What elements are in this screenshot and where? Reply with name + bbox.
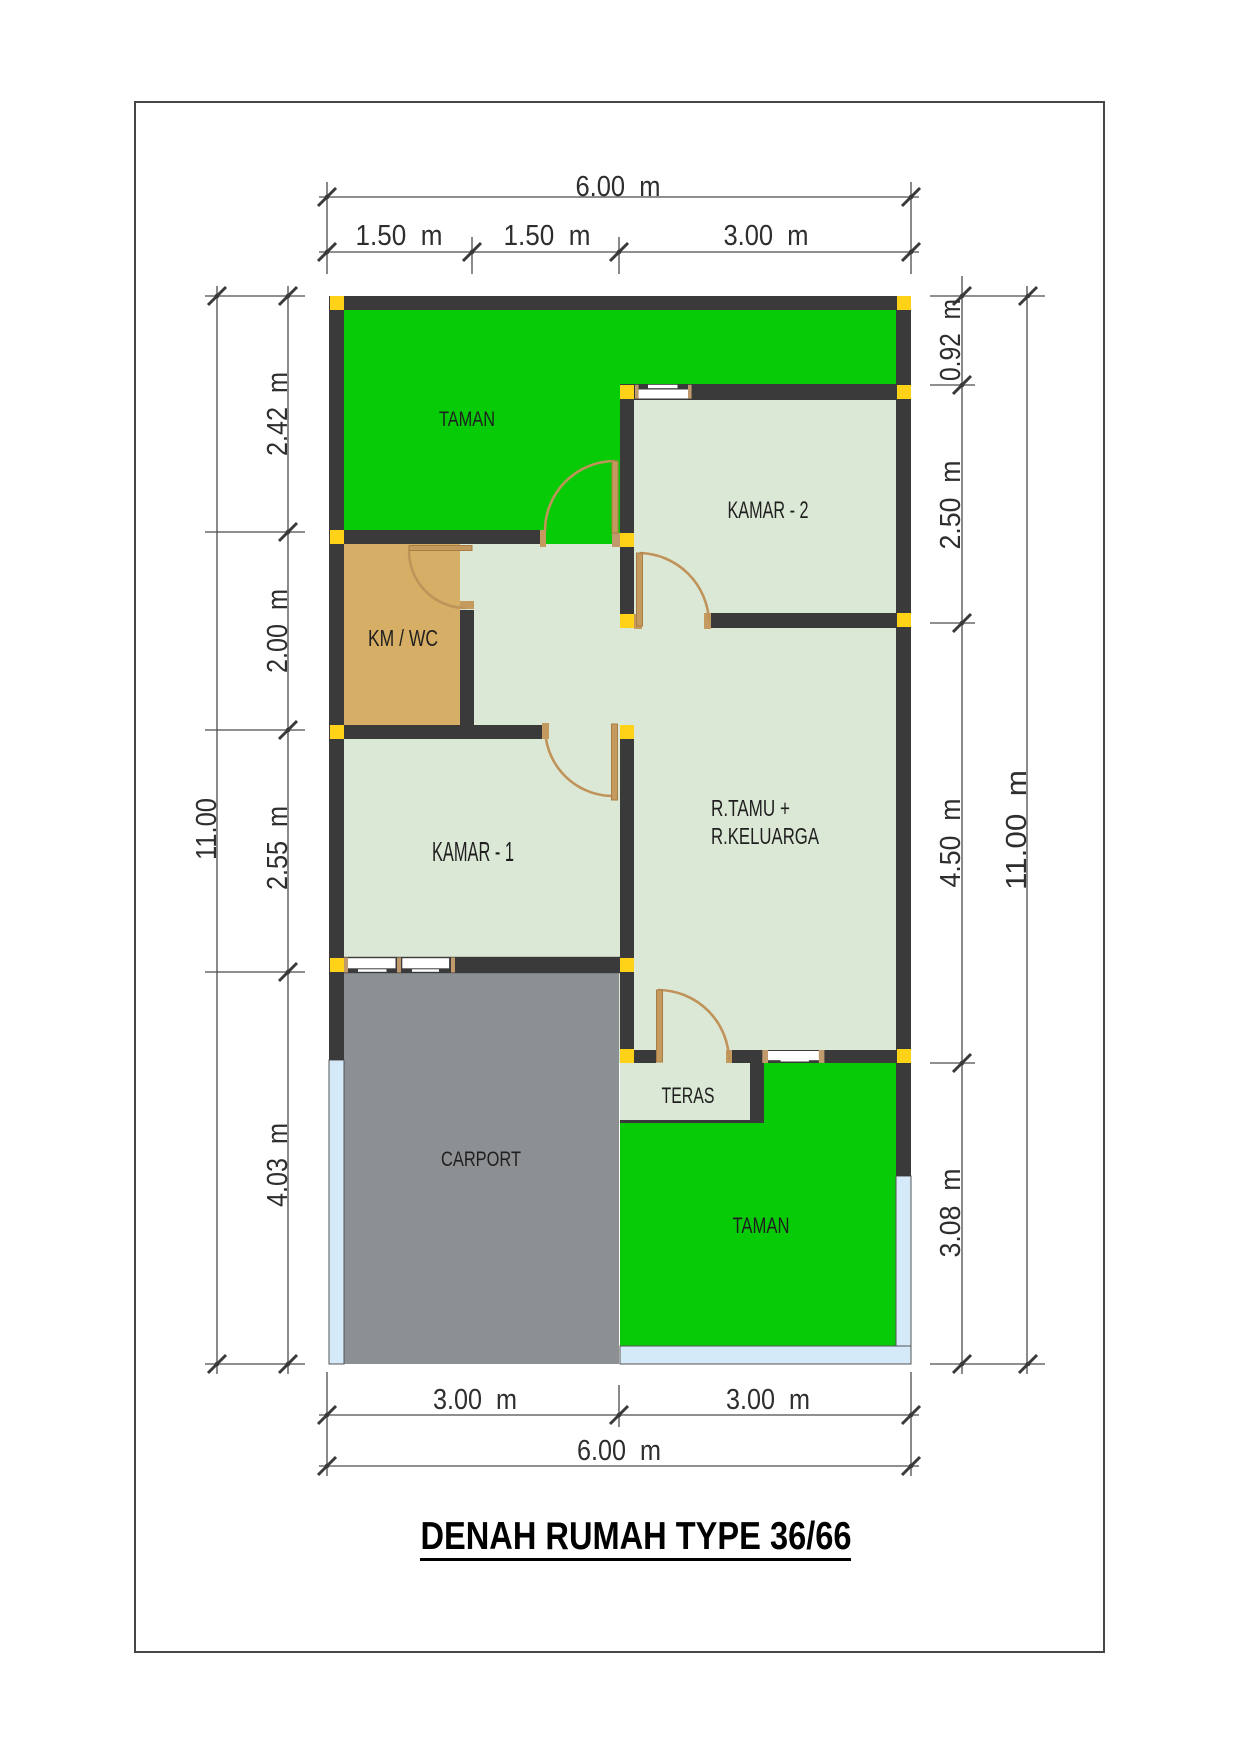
svg-text:0.92 m: 0.92 m bbox=[935, 299, 967, 381]
svg-text:TERAS: TERAS bbox=[662, 1083, 715, 1108]
svg-text:4.50 m: 4.50 m bbox=[935, 799, 967, 888]
svg-text:KAMAR - 2: KAMAR - 2 bbox=[728, 497, 809, 524]
svg-text:11.00: 11.00 bbox=[191, 798, 223, 860]
svg-text:2.50 m: 2.50 m bbox=[935, 461, 967, 550]
svg-text:6.00 m: 6.00 m bbox=[577, 1435, 661, 1467]
svg-text:DENAH RUMAH TYPE 36/66: DENAH RUMAH TYPE 36/66 bbox=[421, 1515, 852, 1558]
svg-text:KM / WC: KM / WC bbox=[368, 625, 438, 651]
svg-text:R.KELUARGA: R.KELUARGA bbox=[711, 823, 819, 849]
svg-text:1.50 m: 1.50 m bbox=[356, 220, 443, 252]
svg-text:6.00 m: 6.00 m bbox=[576, 171, 661, 203]
svg-text:KAMAR - 1: KAMAR - 1 bbox=[432, 836, 514, 867]
svg-text:3.08 m: 3.08 m bbox=[935, 1169, 967, 1258]
svg-text:2.00 m: 2.00 m bbox=[262, 589, 294, 673]
svg-text:TAMAN: TAMAN bbox=[733, 1213, 790, 1238]
svg-text:4.03 m: 4.03 m bbox=[262, 1123, 294, 1207]
svg-text:11.00 m: 11.00 m bbox=[1001, 770, 1033, 890]
svg-text:2.55 m: 2.55 m bbox=[262, 806, 294, 890]
svg-text:3.00 m: 3.00 m bbox=[726, 1384, 810, 1416]
svg-text:2.42 m: 2.42 m bbox=[262, 372, 294, 456]
svg-text:1.50 m: 1.50 m bbox=[504, 220, 591, 252]
svg-text:3.00 m: 3.00 m bbox=[433, 1384, 517, 1416]
svg-text:CARPORT: CARPORT bbox=[441, 1148, 521, 1171]
svg-text:TAMAN: TAMAN bbox=[439, 408, 495, 431]
svg-text:3.00 m: 3.00 m bbox=[724, 220, 809, 252]
svg-text:R.TAMU +: R.TAMU + bbox=[711, 795, 790, 821]
